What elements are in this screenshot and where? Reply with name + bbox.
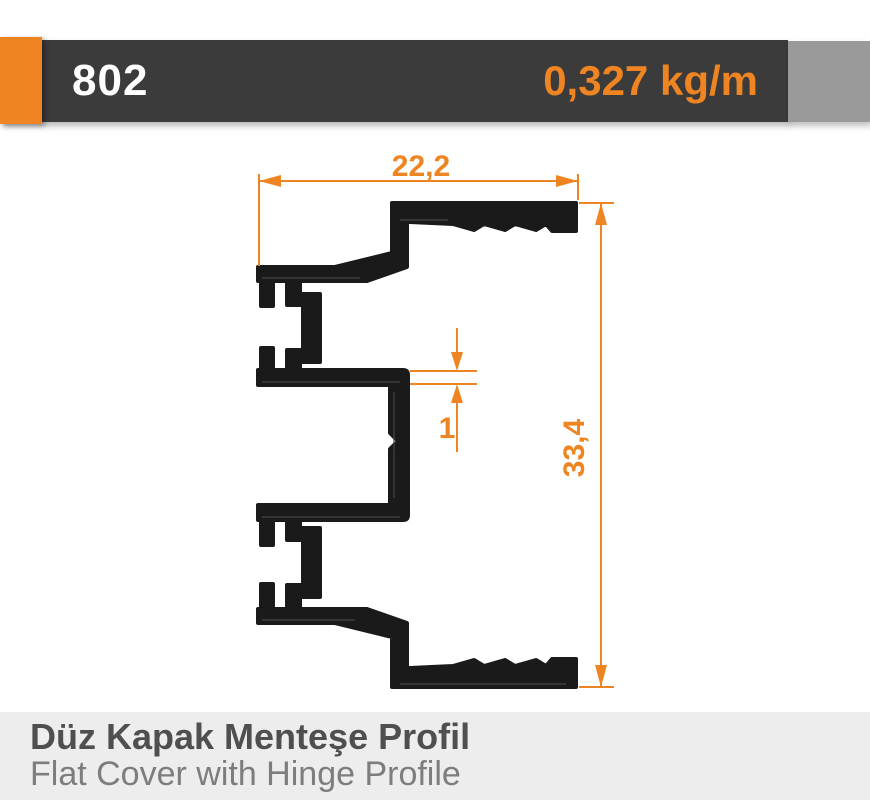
dim-height-arrow-top <box>595 203 607 225</box>
catalog-page: 802 0,327 kg/m 22,2 <box>0 0 870 800</box>
profile-cross-section <box>258 203 576 687</box>
dim-width-arrow-right <box>556 175 578 187</box>
profile-drawing: 22,2 33,4 1 <box>0 0 870 800</box>
dim-width-arrow-left <box>259 175 281 187</box>
dim-wall-arrow-up <box>451 384 463 403</box>
dim-wall-arrow-down <box>451 352 463 371</box>
dim-height-label: 33,4 <box>558 418 591 477</box>
footer-subtitle-english: Flat Cover with Hinge Profile <box>30 757 461 791</box>
dim-width-label: 22,2 <box>392 150 450 183</box>
dim-wall-label: 1 <box>439 412 456 445</box>
footer-title-turkish: Düz Kapak Menteşe Profil <box>30 719 470 755</box>
dim-height-arrow-bottom <box>595 665 607 687</box>
